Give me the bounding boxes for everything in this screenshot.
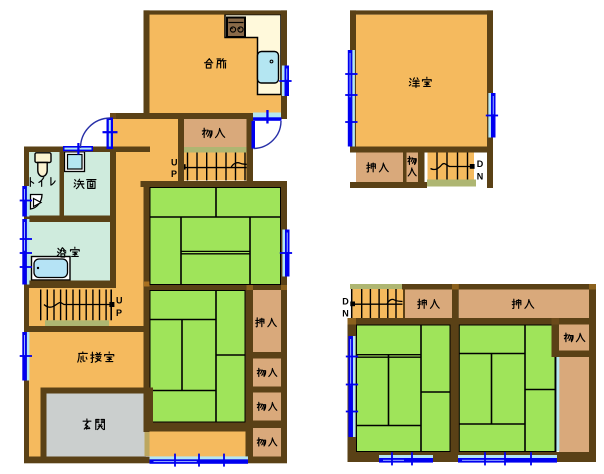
svg-text:P: P	[171, 169, 177, 179]
svg-text:N: N	[477, 172, 484, 182]
svg-text:D: D	[342, 297, 349, 307]
svg-text:U: U	[171, 158, 178, 168]
svg-text:U: U	[116, 296, 123, 306]
svg-text:P: P	[116, 308, 122, 318]
svg-text:N: N	[342, 309, 349, 319]
svg-text:D: D	[477, 159, 484, 169]
